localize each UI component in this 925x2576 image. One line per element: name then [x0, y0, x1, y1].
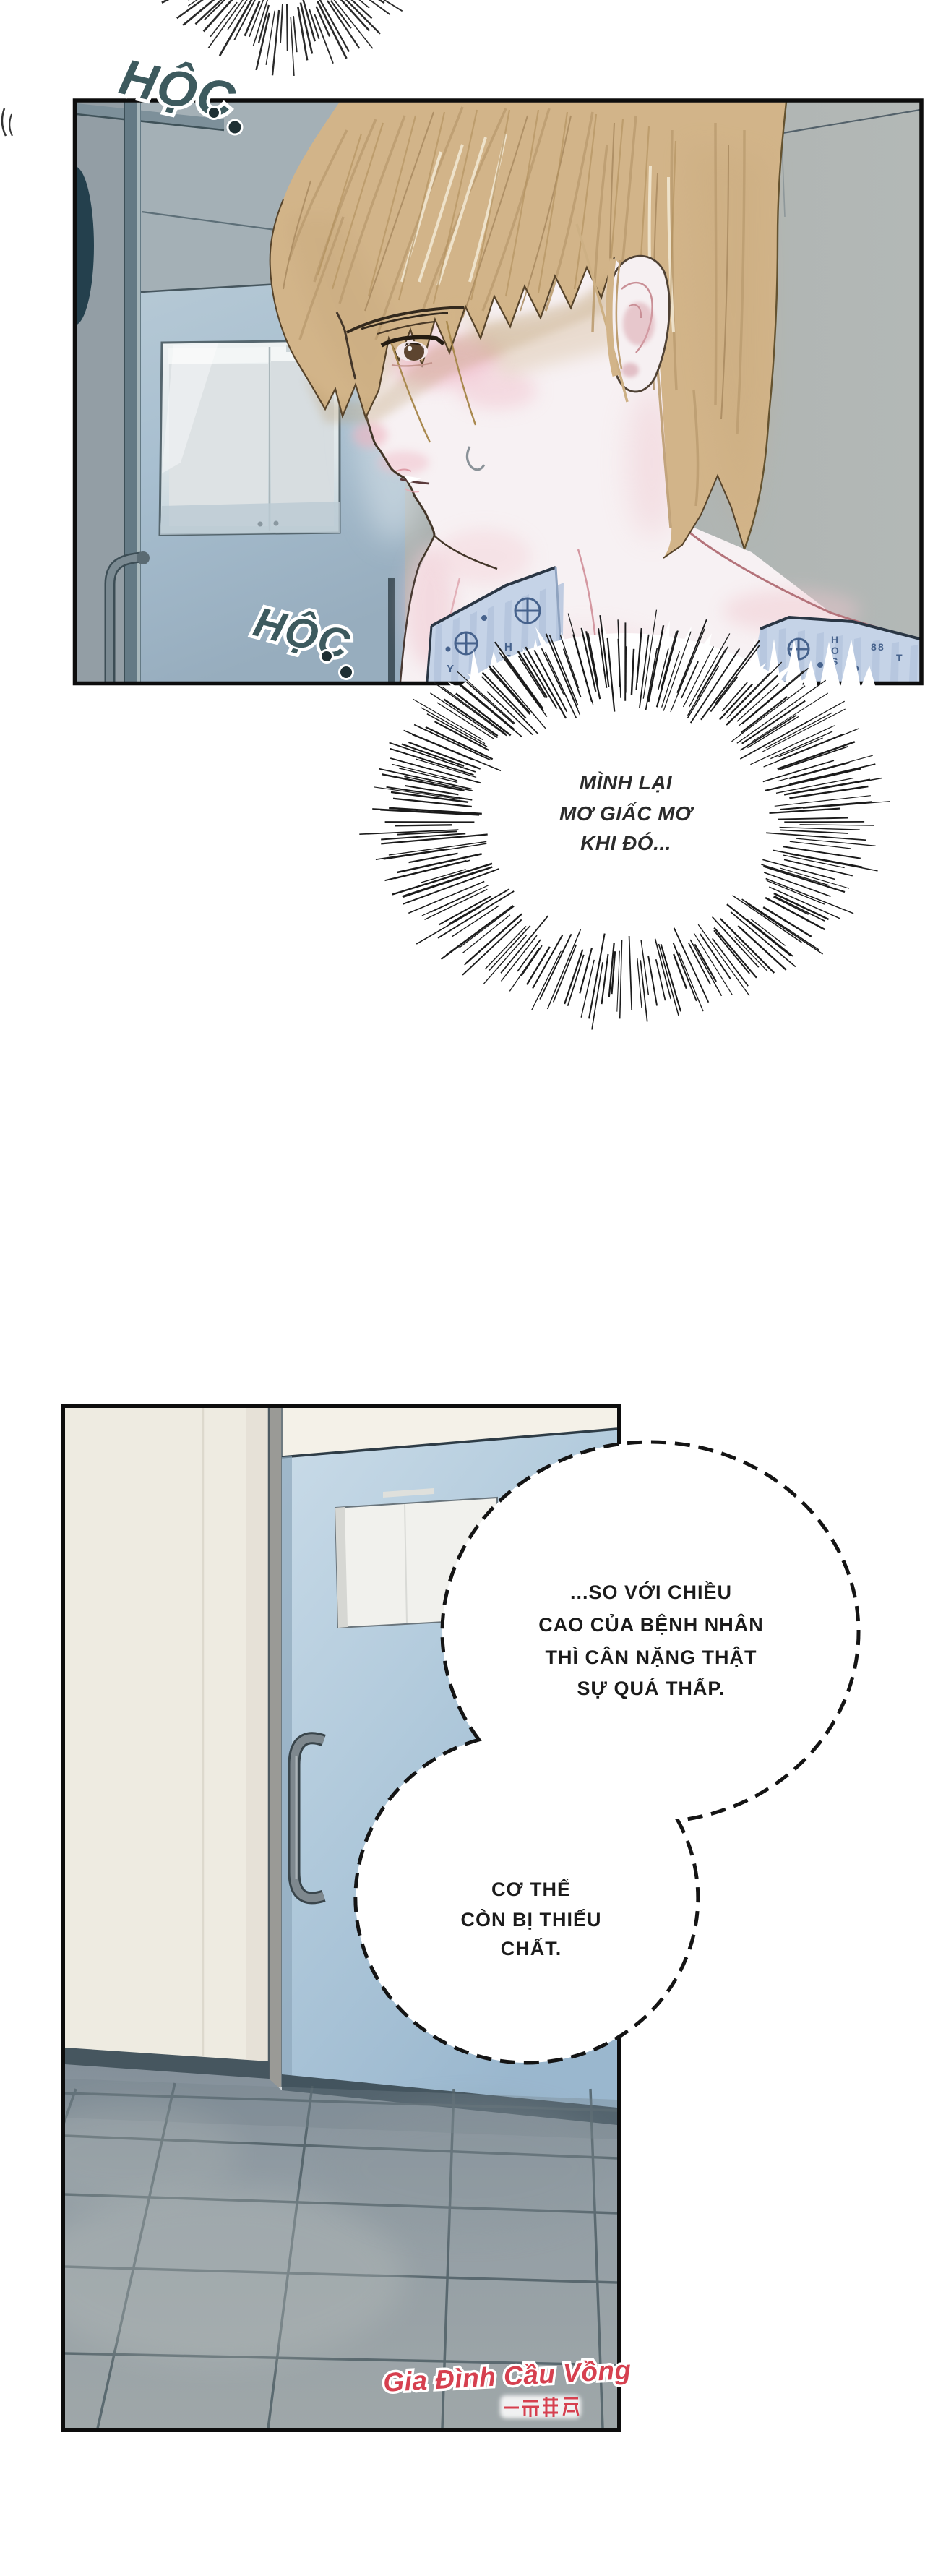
- svg-text:MƠ GIẤC MƠ: MƠ GIẤC MƠ: [559, 802, 694, 825]
- svg-text:H: H: [504, 641, 512, 653]
- svg-text:8: 8: [871, 641, 877, 653]
- svg-text:CÒN BỊ THIẾU: CÒN BỊ THIẾU: [460, 1908, 601, 1931]
- svg-text:CAO CỦA BỆNH NHÂN: CAO CỦA BỆNH NHÂN: [538, 1613, 764, 1636]
- svg-text:8: 8: [878, 641, 884, 653]
- svg-text:MÌNH LẠI: MÌNH LẠI: [580, 771, 673, 794]
- svg-text:CƠ THỂ: CƠ THỂ: [491, 1878, 571, 1900]
- svg-text:THÌ CÂN NẶNG THẬT: THÌ CÂN NẶNG THẬT: [546, 1646, 757, 1668]
- svg-text:SỰ QUÁ THẤP.: SỰ QUÁ THẤP.: [577, 1677, 726, 1699]
- svg-text:O: O: [831, 645, 839, 656]
- svg-text:...SO VỚI CHIỀU: ...SO VỚI CHIỀU: [570, 1581, 732, 1603]
- svg-text:H: H: [831, 634, 838, 645]
- svg-text:CHẤT.: CHẤT.: [501, 1937, 562, 1959]
- svg-text:KHI ĐÓ...: KHI ĐÓ...: [580, 832, 671, 854]
- svg-text:Y: Y: [447, 663, 454, 675]
- svg-text:T: T: [896, 652, 903, 664]
